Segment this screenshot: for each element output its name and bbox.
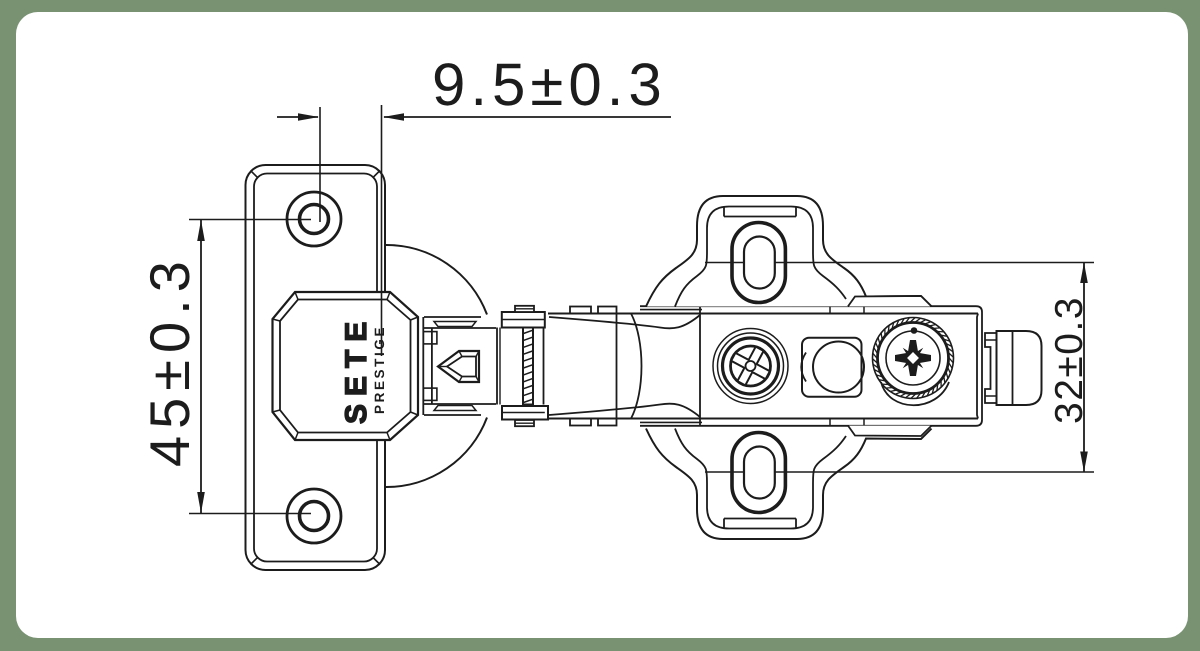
svg-text:SETE: SETE [340, 314, 373, 424]
svg-text:PRESTIGE: PRESTIGE [372, 325, 387, 414]
svg-text:45±0.3: 45±0.3 [138, 254, 201, 467]
svg-text:9.5±0.3: 9.5±0.3 [432, 51, 667, 118]
